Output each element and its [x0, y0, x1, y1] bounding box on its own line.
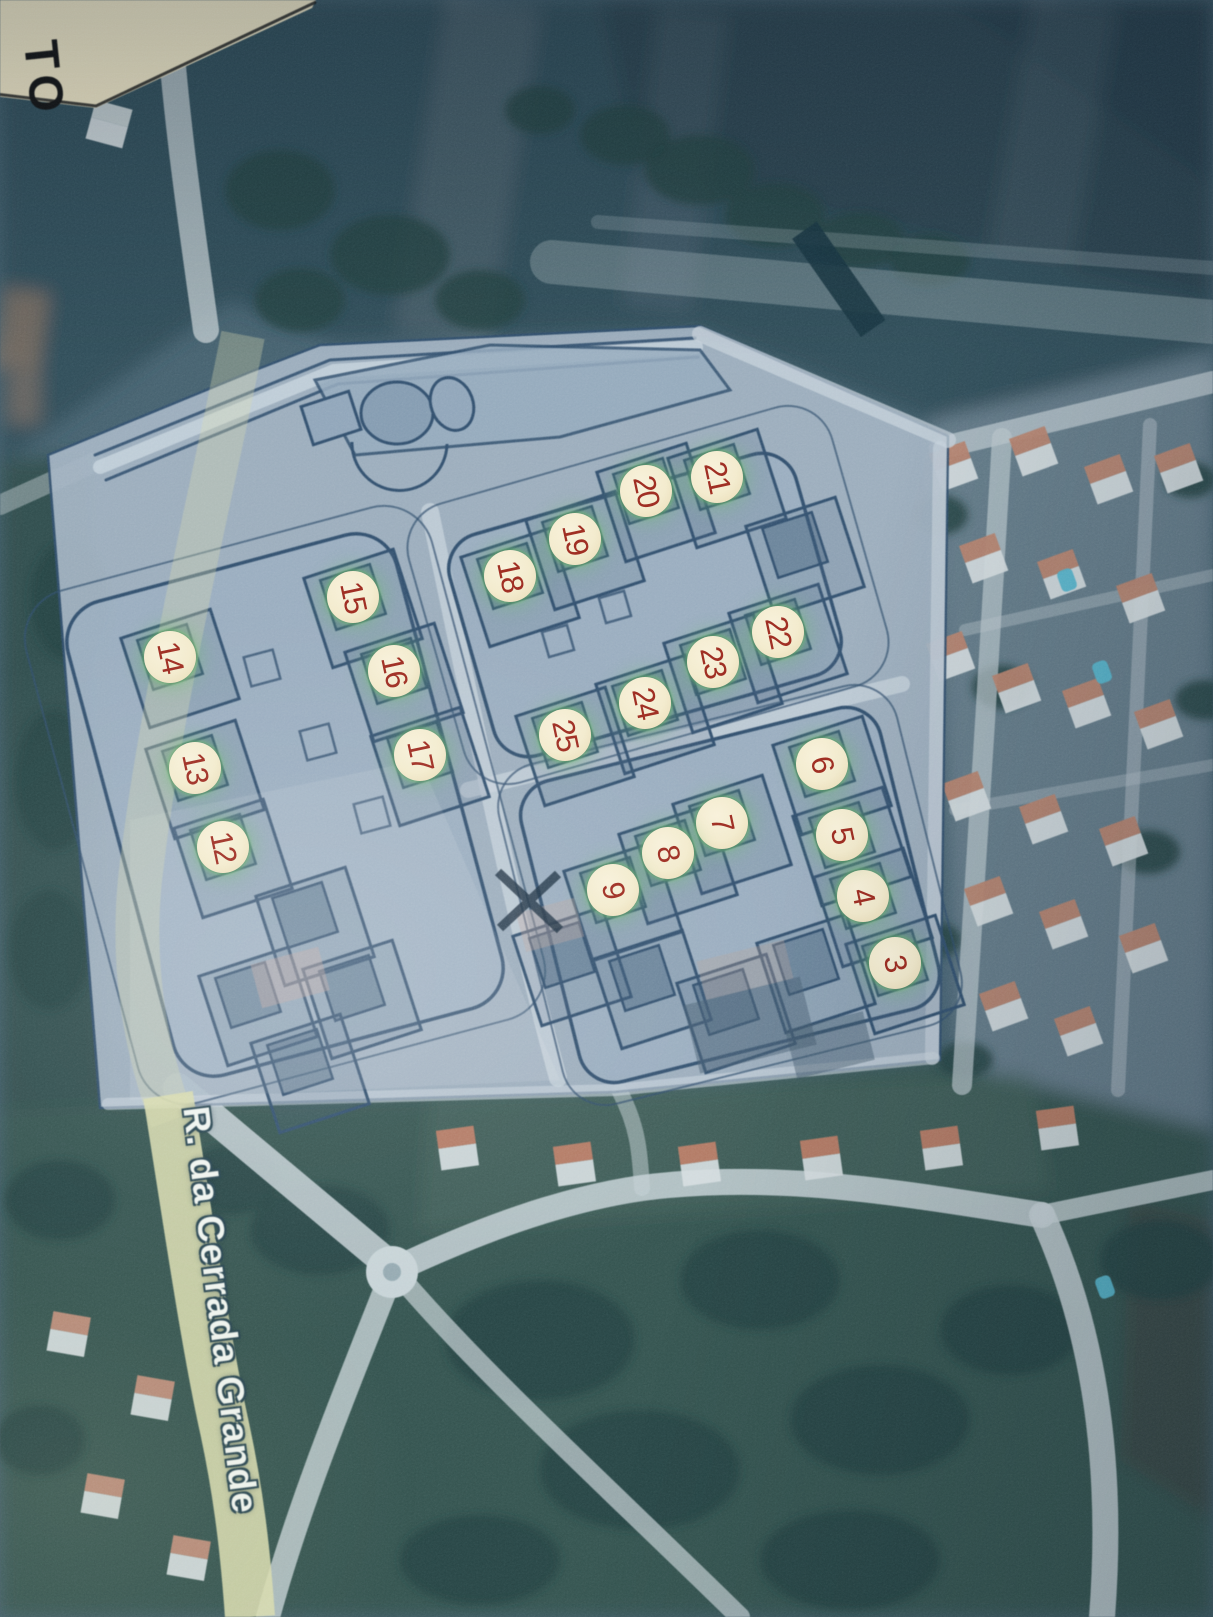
lot-number: 25 [534, 704, 596, 766]
map-photo: TO R. da Cerrada Grande 3456789121314151… [0, 0, 1213, 1617]
lot-marker[interactable]: 15 [327, 571, 379, 623]
lot-marker[interactable]: 9 [587, 864, 639, 916]
lot-number: 9 [582, 859, 644, 921]
lot-marker[interactable]: 14 [144, 631, 196, 683]
lot-marker[interactable]: 25 [539, 709, 591, 761]
lot-number: 16 [363, 640, 425, 702]
lot-number: 24 [614, 672, 676, 734]
lot-marker[interactable]: 16 [368, 645, 420, 697]
lot-marker[interactable]: 19 [549, 513, 601, 565]
lot-marker[interactable]: 23 [687, 636, 739, 688]
lot-number: 18 [479, 545, 541, 607]
lot-number: 21 [686, 446, 748, 508]
lot-marker[interactable]: 18 [484, 550, 536, 602]
lot-number: 6 [791, 733, 853, 795]
lot-marker[interactable]: 4 [837, 870, 889, 922]
lot-marker[interactable]: 20 [620, 465, 672, 517]
lot-number: 12 [192, 816, 254, 878]
lot-number: 22 [747, 601, 809, 663]
lot-marker[interactable]: 22 [752, 606, 804, 658]
lot-marker[interactable]: 6 [796, 738, 848, 790]
lot-marker[interactable]: 5 [816, 809, 868, 861]
lot-number: 4 [832, 865, 894, 927]
lot-marker[interactable]: 21 [691, 451, 743, 503]
lot-number: 14 [139, 626, 201, 688]
lot-marker[interactable]: 3 [869, 937, 921, 989]
lot-marker[interactable]: 8 [642, 827, 694, 879]
lot-number: 8 [637, 822, 699, 884]
lot-number: 15 [322, 566, 384, 628]
lot-number: 5 [811, 804, 873, 866]
lot-number: 17 [389, 724, 451, 786]
lot-number: 3 [864, 932, 926, 994]
lot-marker[interactable]: 7 [696, 797, 748, 849]
lot-markers: 34567891213141516171819202122232425 [0, 0, 1213, 1617]
lot-marker[interactable]: 17 [394, 729, 446, 781]
lot-number: 7 [691, 792, 753, 854]
lot-number: 23 [682, 631, 744, 693]
lot-marker[interactable]: 24 [619, 677, 671, 729]
lot-number: 19 [544, 508, 606, 570]
lot-number: 20 [615, 460, 677, 522]
lot-marker[interactable]: 13 [169, 742, 221, 794]
lot-marker[interactable]: 12 [197, 821, 249, 873]
lot-number: 13 [164, 737, 226, 799]
